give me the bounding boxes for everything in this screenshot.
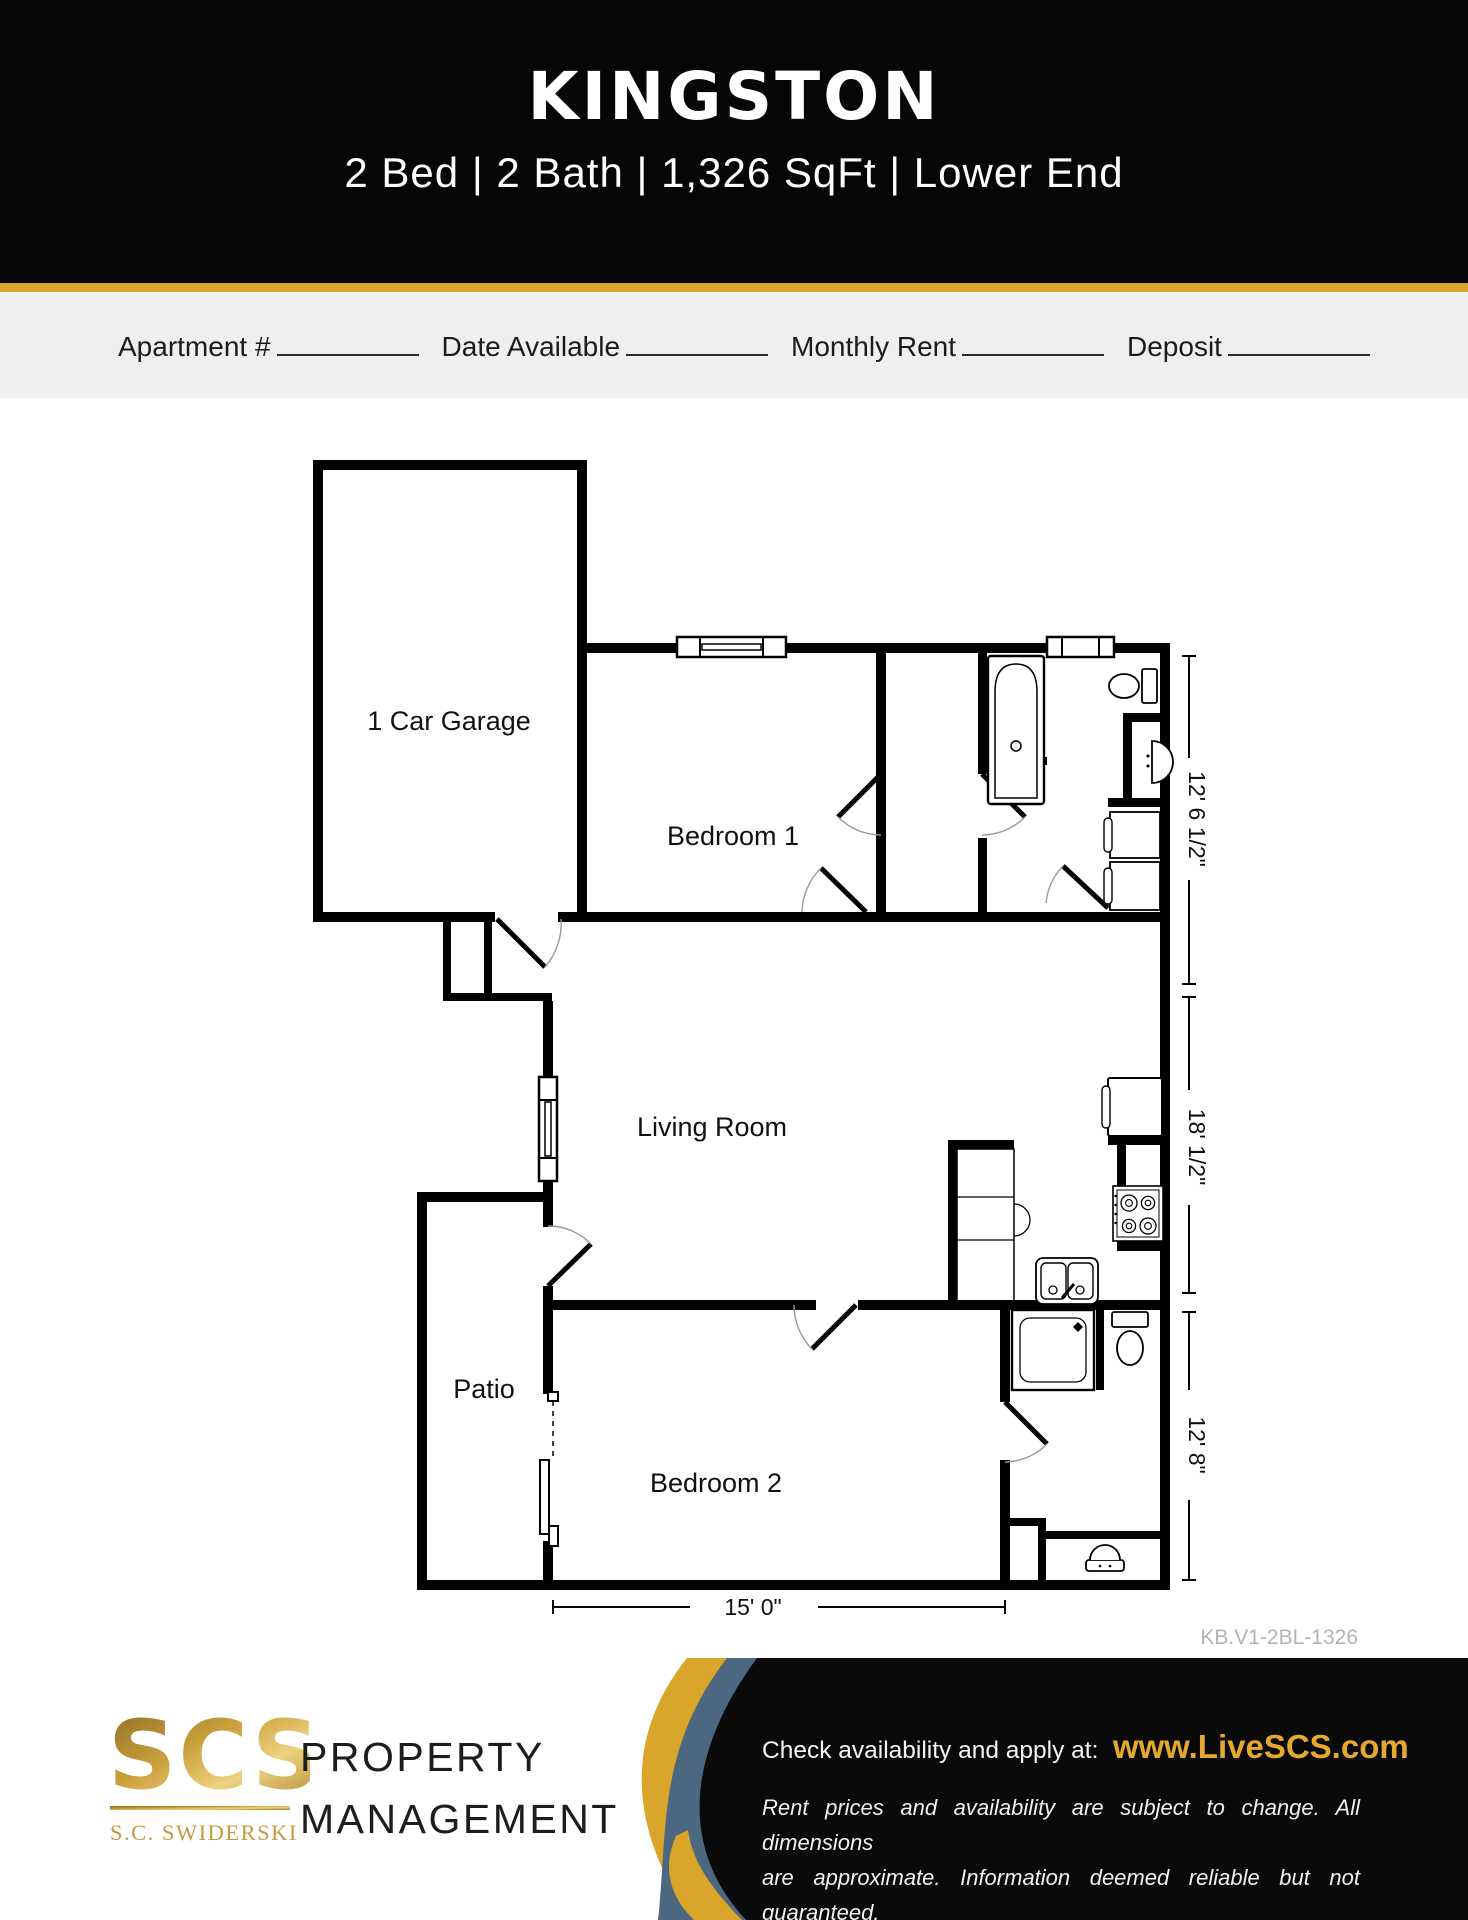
room-label-patio: Patio (453, 1374, 515, 1404)
scs-logo: SCS S.C. SWIDERSKI (110, 1698, 310, 1868)
linen-closet-door (1046, 866, 1108, 908)
logo-tagline: PROPERTY MANAGEMENT (300, 1726, 619, 1850)
scs-logo-company: S.C. SWIDERSKI (110, 1820, 298, 1845)
dimension-side-middle: 18' 1/2" (1184, 1109, 1210, 1186)
dimension-side-top: 12' 6 1/2" (1184, 771, 1210, 867)
cta: Check availability and apply at: www.Liv… (762, 1728, 1409, 1766)
date-available-blank[interactable] (626, 330, 768, 356)
window-icon (677, 637, 786, 657)
monthly-rent-field: Monthly Rent (791, 330, 1104, 363)
entry-door (497, 919, 561, 967)
room-label-bedroom2: Bedroom 2 (650, 1468, 782, 1498)
dryer-icon (1104, 862, 1160, 910)
tagline-line1: PROPERTY (300, 1726, 619, 1788)
monthly-rent-label: Monthly Rent (791, 331, 956, 362)
disclaimer: Rent prices and availability are subject… (762, 1790, 1360, 1920)
scs-logo-rule (110, 1806, 290, 1810)
room-label-bedroom1: Bedroom 1 (667, 821, 799, 851)
deposit-label: Deposit (1127, 331, 1222, 362)
date-available-label: Date Available (442, 331, 621, 362)
room-label-living: Living Room (637, 1112, 787, 1142)
apartment-number-label: Apartment # (118, 331, 271, 362)
washer-icon (1104, 812, 1160, 858)
dimension-bottom: 15' 0" (724, 1594, 781, 1620)
fridge-icon (1102, 1078, 1162, 1136)
bathtub-icon (988, 656, 1044, 804)
disclaimer-line1: Rent prices and availability are subject… (762, 1790, 1360, 1860)
deposit-blank[interactable] (1228, 330, 1370, 356)
date-available-field: Date Available (442, 330, 769, 363)
footer: SCS S.C. SWIDERSKI PROPERTY MANAGEMENT C… (0, 1658, 1468, 1920)
bathroom-sink-icon (1086, 1545, 1124, 1571)
availability-form: Apartment # Date Available Monthly Rent … (0, 292, 1468, 398)
stove-icon (1113, 1186, 1163, 1241)
window-icon (1047, 637, 1114, 657)
monthly-rent-blank[interactable] (962, 330, 1104, 356)
cta-label: Check availability and apply at: (762, 1737, 1098, 1764)
deposit-field: Deposit (1127, 330, 1370, 363)
header: KINGSTON 2 Bed | 2 Bath | 1,326 SqFt | L… (0, 0, 1468, 283)
kitchen-sink-icon (1036, 1258, 1098, 1304)
page-subtitle: 2 Bed | 2 Bath | 1,326 SqFt | Lower End (0, 149, 1468, 197)
apartment-number-blank[interactable] (277, 330, 419, 356)
closet-door (838, 774, 881, 835)
toilet-icon (1112, 1312, 1148, 1365)
toilet-icon (1109, 669, 1157, 703)
sliding-door-icon (540, 1392, 558, 1546)
tagline-line2: MANAGEMENT (300, 1788, 619, 1850)
room-label-garage: 1 Car Garage (367, 706, 531, 736)
kitchen-counter (957, 1149, 1030, 1304)
bedroom1-door (802, 868, 866, 912)
page-title: KINGSTON (0, 0, 1468, 135)
apartment-number-field: Apartment # (118, 330, 419, 363)
flyer-page: 1 Car Garage Bedroom 1 Living Room Patio… (0, 0, 1468, 1920)
plan-code: KB.V1-2BL-1326 (1200, 1626, 1358, 1649)
dimension-side-bottom: 12' 8" (1184, 1416, 1210, 1473)
patio-door (548, 1226, 591, 1286)
disclaimer-line2: are approximate. Information deemed reli… (762, 1860, 1360, 1920)
cta-url-link[interactable]: www.LiveSCS.com (1113, 1728, 1409, 1765)
shower-icon (1012, 1310, 1094, 1390)
bathroom2-door (1005, 1402, 1047, 1462)
bedroom2-door (794, 1305, 856, 1349)
fixtures (957, 656, 1173, 1571)
walls (313, 460, 1170, 1590)
window-icon (539, 1077, 557, 1181)
scs-logo-acronym: SCS (110, 1701, 310, 1811)
gold-divider (0, 283, 1468, 292)
